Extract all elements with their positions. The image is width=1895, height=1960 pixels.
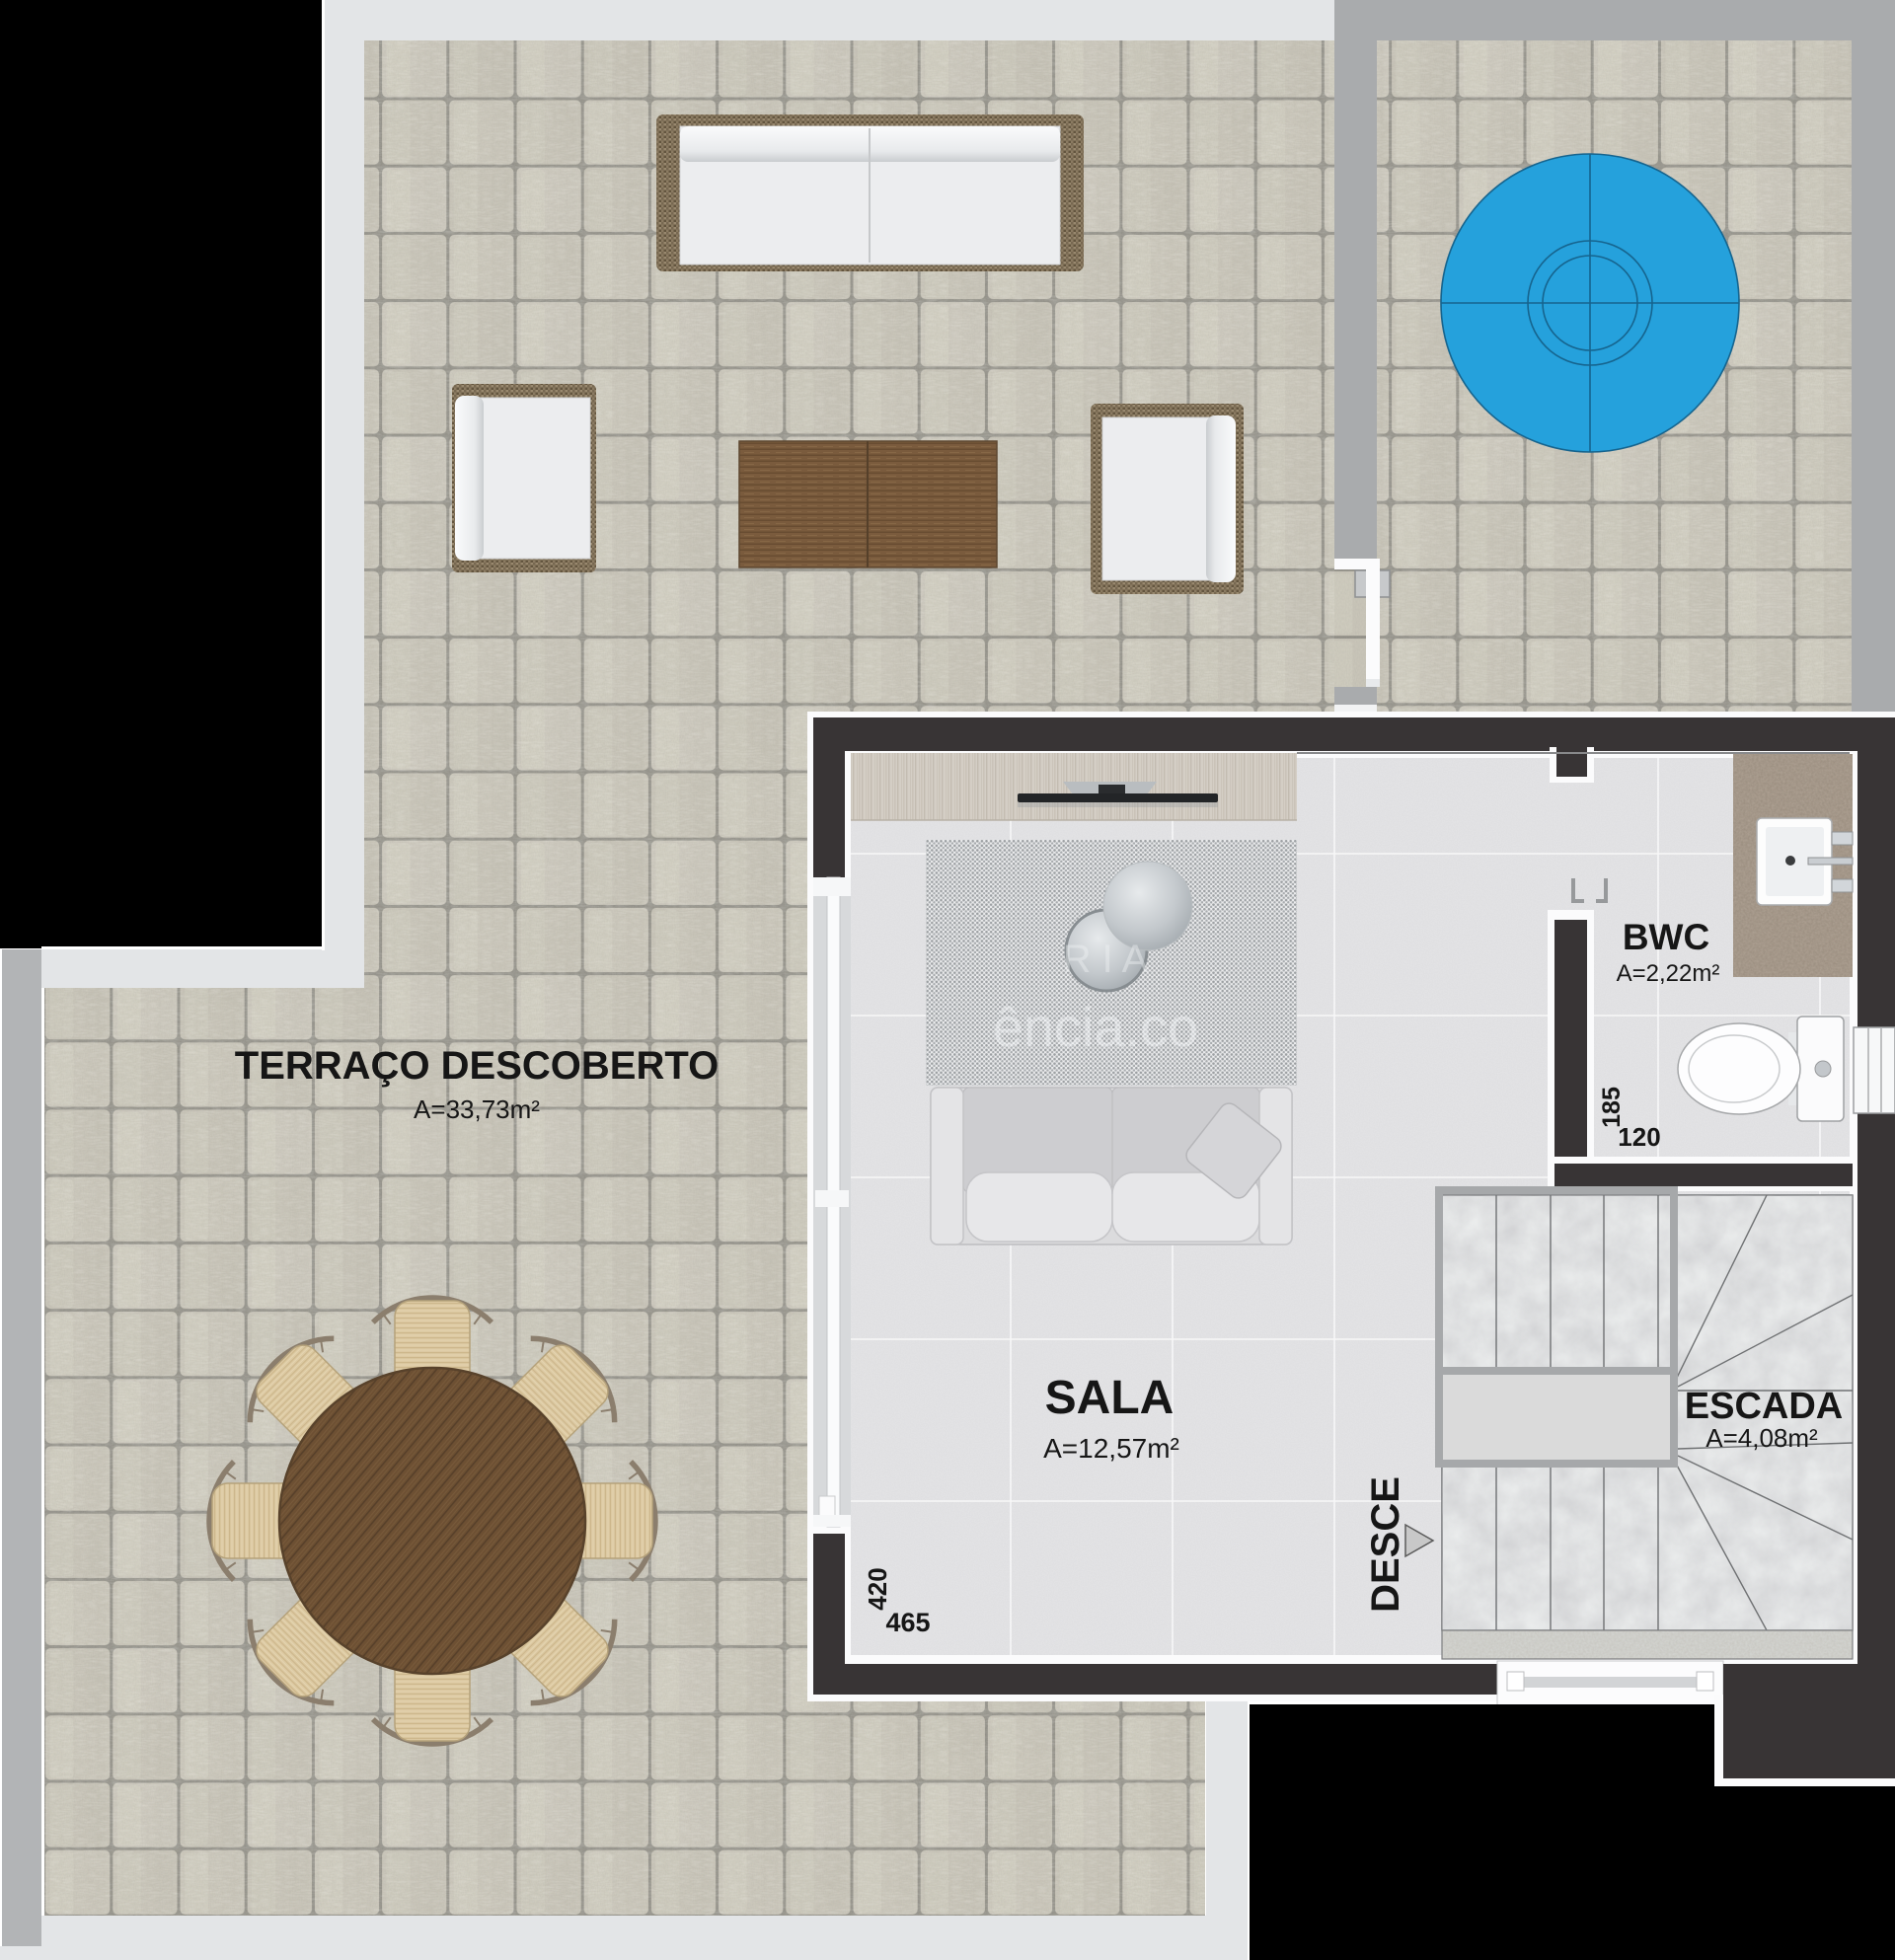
svg-text:A=2,22m²: A=2,22m² <box>1617 960 1720 987</box>
svg-text:120: 120 <box>1618 1122 1660 1152</box>
svg-text:465: 465 <box>885 1608 930 1637</box>
svg-text:A=4,08m²: A=4,08m² <box>1705 1423 1818 1453</box>
svg-text:A=33,73m²: A=33,73m² <box>414 1094 540 1124</box>
svg-text:TERRAÇO DESCOBERTO: TERRAÇO DESCOBERTO <box>235 1044 719 1088</box>
svg-text:A=12,57m²: A=12,57m² <box>1043 1433 1179 1464</box>
svg-text:ência.co: ência.co <box>993 996 1199 1058</box>
svg-text:BWC: BWC <box>1623 917 1709 957</box>
svg-text:SALA: SALA <box>1045 1372 1175 1424</box>
svg-text:420: 420 <box>863 1567 892 1610</box>
svg-text:R I A: R I A <box>1063 938 1149 981</box>
svg-text:DESCE: DESCE <box>1364 1476 1407 1613</box>
svg-text:ESCADA: ESCADA <box>1685 1386 1843 1427</box>
